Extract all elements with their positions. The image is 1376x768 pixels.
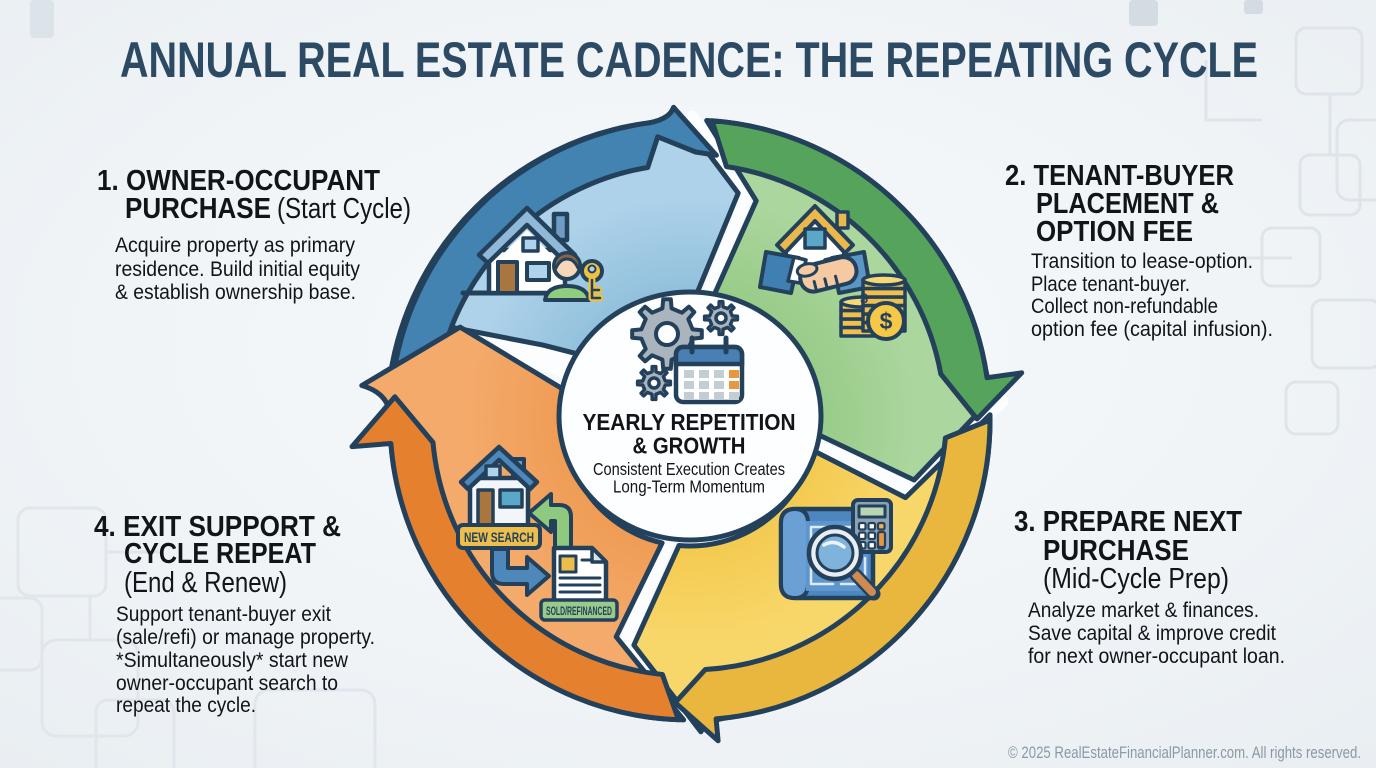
svg-text:PURCHASE: PURCHASE — [125, 193, 271, 225]
svg-text:$: $ — [880, 308, 893, 334]
svg-text:(Start Cycle): (Start Cycle) — [277, 193, 411, 225]
svg-text:Place tenant-buyer.: Place tenant-buyer. — [1031, 272, 1190, 296]
svg-text:Collect non-refundable: Collect non-refundable — [1031, 294, 1218, 318]
svg-text:YEARLY REPETITION: YEARLY REPETITION — [583, 409, 796, 435]
svg-text:Acquire property as primary: Acquire property as primary — [115, 233, 355, 257]
svg-text:ANNUAL REAL ESTATE CADENCE: TH: ANNUAL REAL ESTATE CADENCE: THE REPEATIN… — [120, 32, 1258, 88]
svg-text:SOLD/REFINANCED: SOLD/REFINANCED — [546, 606, 612, 618]
svg-text:residence. Build initial equit: residence. Build initial equity — [115, 257, 360, 281]
svg-text:OPTION FEE: OPTION FEE — [1036, 216, 1193, 248]
svg-text:& establish ownership base.: & establish ownership base. — [115, 280, 356, 304]
svg-text:3. PREPARE NEXT: 3. PREPARE NEXT — [1014, 506, 1242, 538]
svg-text:(End & Renew): (End & Renew) — [124, 567, 287, 599]
svg-text:& GROWTH: & GROWTH — [633, 433, 746, 459]
svg-text:© 2025 RealEstateFinancialPlan: © 2025 RealEstateFinancialPlanner.com. A… — [1008, 743, 1361, 762]
svg-text:Save capital & improve credit: Save capital & improve credit — [1028, 621, 1276, 645]
svg-text:owner-occupant search to: owner-occupant search to — [116, 671, 338, 695]
svg-text:Transition to lease-option.: Transition to lease-option. — [1031, 249, 1253, 273]
svg-text:for next owner-occupant loan.: for next owner-occupant loan. — [1028, 644, 1285, 668]
svg-text:Long-Term Momentum: Long-Term Momentum — [613, 477, 765, 497]
svg-text:(Mid-Cycle Prep): (Mid-Cycle Prep) — [1043, 563, 1229, 595]
svg-text:NEW SEARCH: NEW SEARCH — [464, 529, 534, 545]
svg-text:$: $ — [860, 290, 868, 306]
svg-text:Support tenant-buyer exit: Support tenant-buyer exit — [116, 602, 331, 626]
svg-text:*Simultaneously* start new: *Simultaneously* start new — [116, 648, 348, 672]
svg-text:(sale/refi) or manage property: (sale/refi) or manage property. — [116, 625, 375, 649]
svg-text:CYCLE REPEAT: CYCLE REPEAT — [124, 538, 316, 570]
svg-text:repeat the cycle.: repeat the cycle. — [116, 693, 256, 717]
svg-text:Analyze market & finances.: Analyze market & finances. — [1028, 598, 1259, 622]
svg-text:option fee (capital infusion).: option fee (capital infusion). — [1031, 317, 1273, 341]
